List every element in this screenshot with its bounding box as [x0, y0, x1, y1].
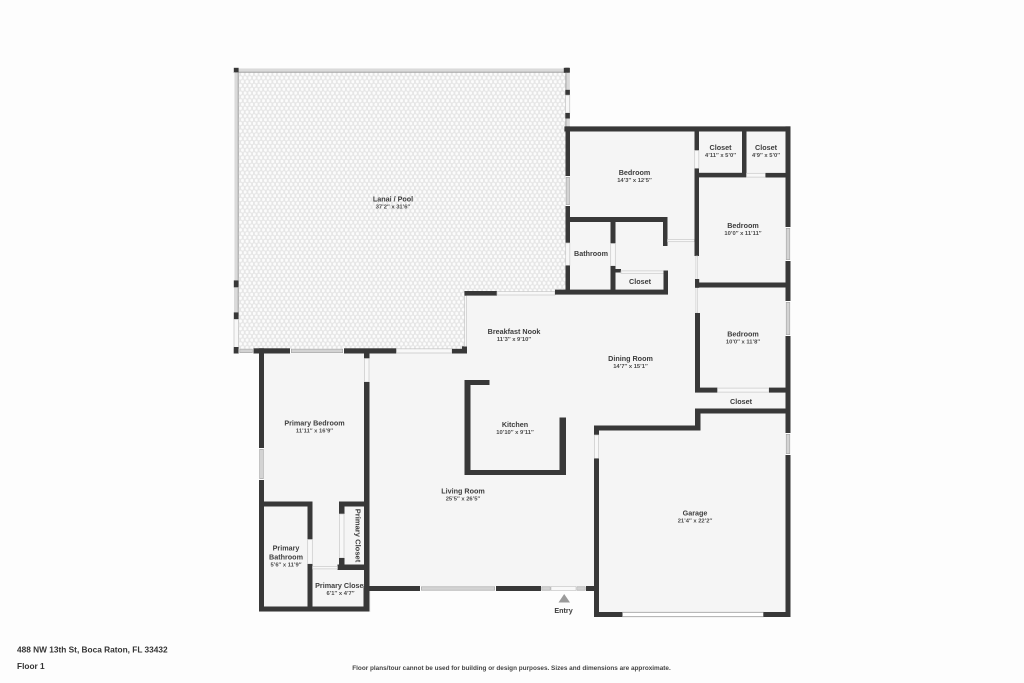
svg-text:14’7″ x 15’1″: 14’7″ x 15’1″	[613, 364, 648, 370]
svg-text:11’11″ x 16’9″: 11’11″ x 16’9″	[296, 429, 333, 435]
svg-text:21’4″ x 22’2″: 21’4″ x 22’2″	[678, 519, 713, 525]
svg-text:10’0″ x 11’11″: 10’0″ x 11’11″	[724, 231, 761, 237]
svg-text:Kitchen: Kitchen	[502, 420, 528, 429]
svg-text:Closet: Closet	[629, 277, 652, 286]
svg-text:4’9″ x 5’0″: 4’9″ x 5’0″	[752, 153, 780, 159]
svg-text:5’6″ x 11’9″: 5’6″ x 11’9″	[270, 563, 301, 569]
svg-text:10’0″ x 11’8″: 10’0″ x 11’8″	[726, 340, 760, 346]
svg-text:Bedroom: Bedroom	[619, 168, 651, 177]
svg-text:Closet: Closet	[755, 143, 778, 152]
svg-text:Closet: Closet	[730, 397, 753, 406]
svg-text:25’5″ x 26’5″: 25’5″ x 26’5″	[446, 497, 481, 503]
svg-text:Breakfast Nook: Breakfast Nook	[488, 327, 541, 336]
svg-text:488 NW 13th St, Boca Raton, FL: 488 NW 13th St, Boca Raton, FL 33432	[17, 645, 168, 655]
svg-text:Bathroom: Bathroom	[269, 553, 303, 562]
svg-text:4’11″ x 5’0″: 4’11″ x 5’0″	[705, 153, 736, 159]
svg-text:Dining Room: Dining Room	[608, 354, 653, 363]
svg-text:Bedroom: Bedroom	[727, 221, 759, 230]
svg-text:14’3″ x 12’5″: 14’3″ x 12’5″	[617, 178, 652, 184]
svg-text:10’10″ x 9’11″: 10’10″ x 9’11″	[496, 430, 534, 436]
svg-text:Bathroom: Bathroom	[574, 249, 608, 258]
svg-text:Primary Closet: Primary Closet	[354, 509, 363, 563]
svg-text:Floor 1: Floor 1	[17, 661, 45, 671]
svg-text:Primary Closet: Primary Closet	[315, 581, 366, 590]
svg-text:Floor plans/tour cannot be use: Floor plans/tour cannot be used for buil…	[352, 665, 671, 672]
svg-text:6’1″ x 4’7″: 6’1″ x 4’7″	[326, 591, 354, 597]
svg-text:Primary Bedroom: Primary Bedroom	[284, 419, 344, 428]
svg-text:Garage: Garage	[683, 509, 708, 518]
svg-text:Closet: Closet	[710, 143, 733, 152]
svg-text:Bedroom: Bedroom	[727, 330, 759, 339]
svg-text:11’3″ x 9’10″: 11’3″ x 9’10″	[497, 337, 531, 343]
svg-text:Primary: Primary	[273, 544, 300, 553]
svg-text:Living Room: Living Room	[441, 487, 485, 496]
svg-text:37’2″ x 31’6″: 37’2″ x 31’6″	[376, 205, 411, 211]
svg-text:Lanai / Pool: Lanai / Pool	[373, 195, 413, 204]
svg-text:Entry: Entry	[554, 606, 572, 615]
